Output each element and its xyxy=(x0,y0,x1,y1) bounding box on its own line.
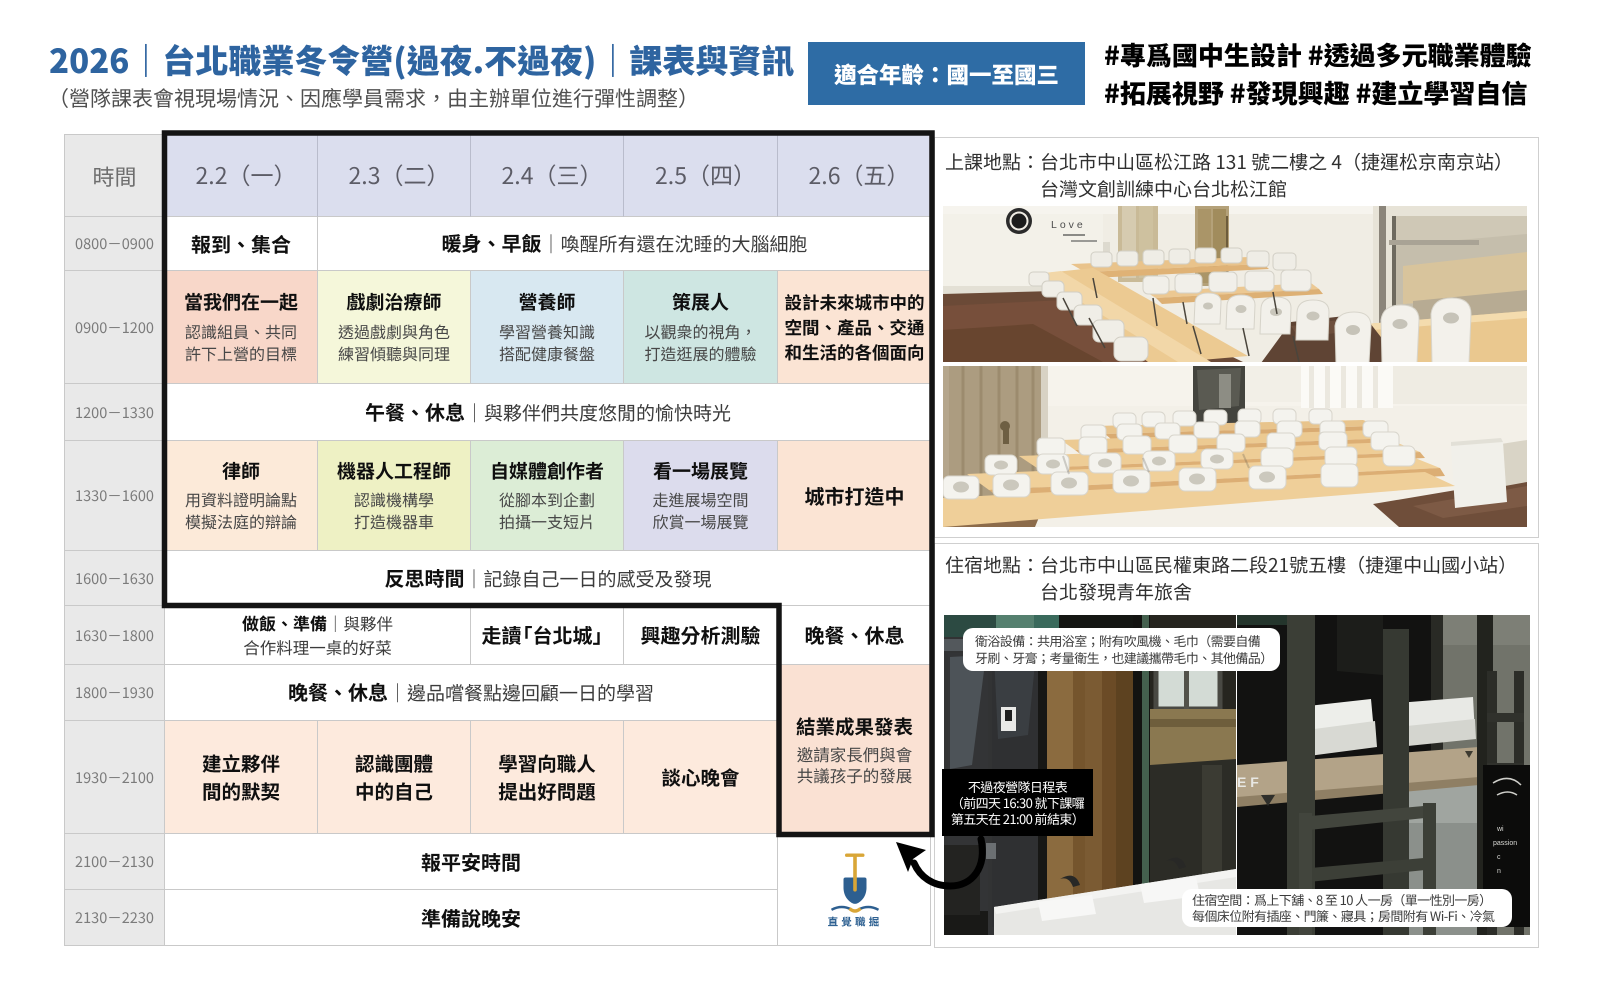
svg-text:wi: wi xyxy=(1496,826,1504,833)
svg-text:passion: passion xyxy=(1493,840,1517,847)
svg-text:c: c xyxy=(1497,854,1501,861)
svg-text:n: n xyxy=(1497,868,1501,875)
svg-text:Love: Love xyxy=(1051,219,1086,231)
svg-text:E F: E F xyxy=(1237,774,1259,790)
